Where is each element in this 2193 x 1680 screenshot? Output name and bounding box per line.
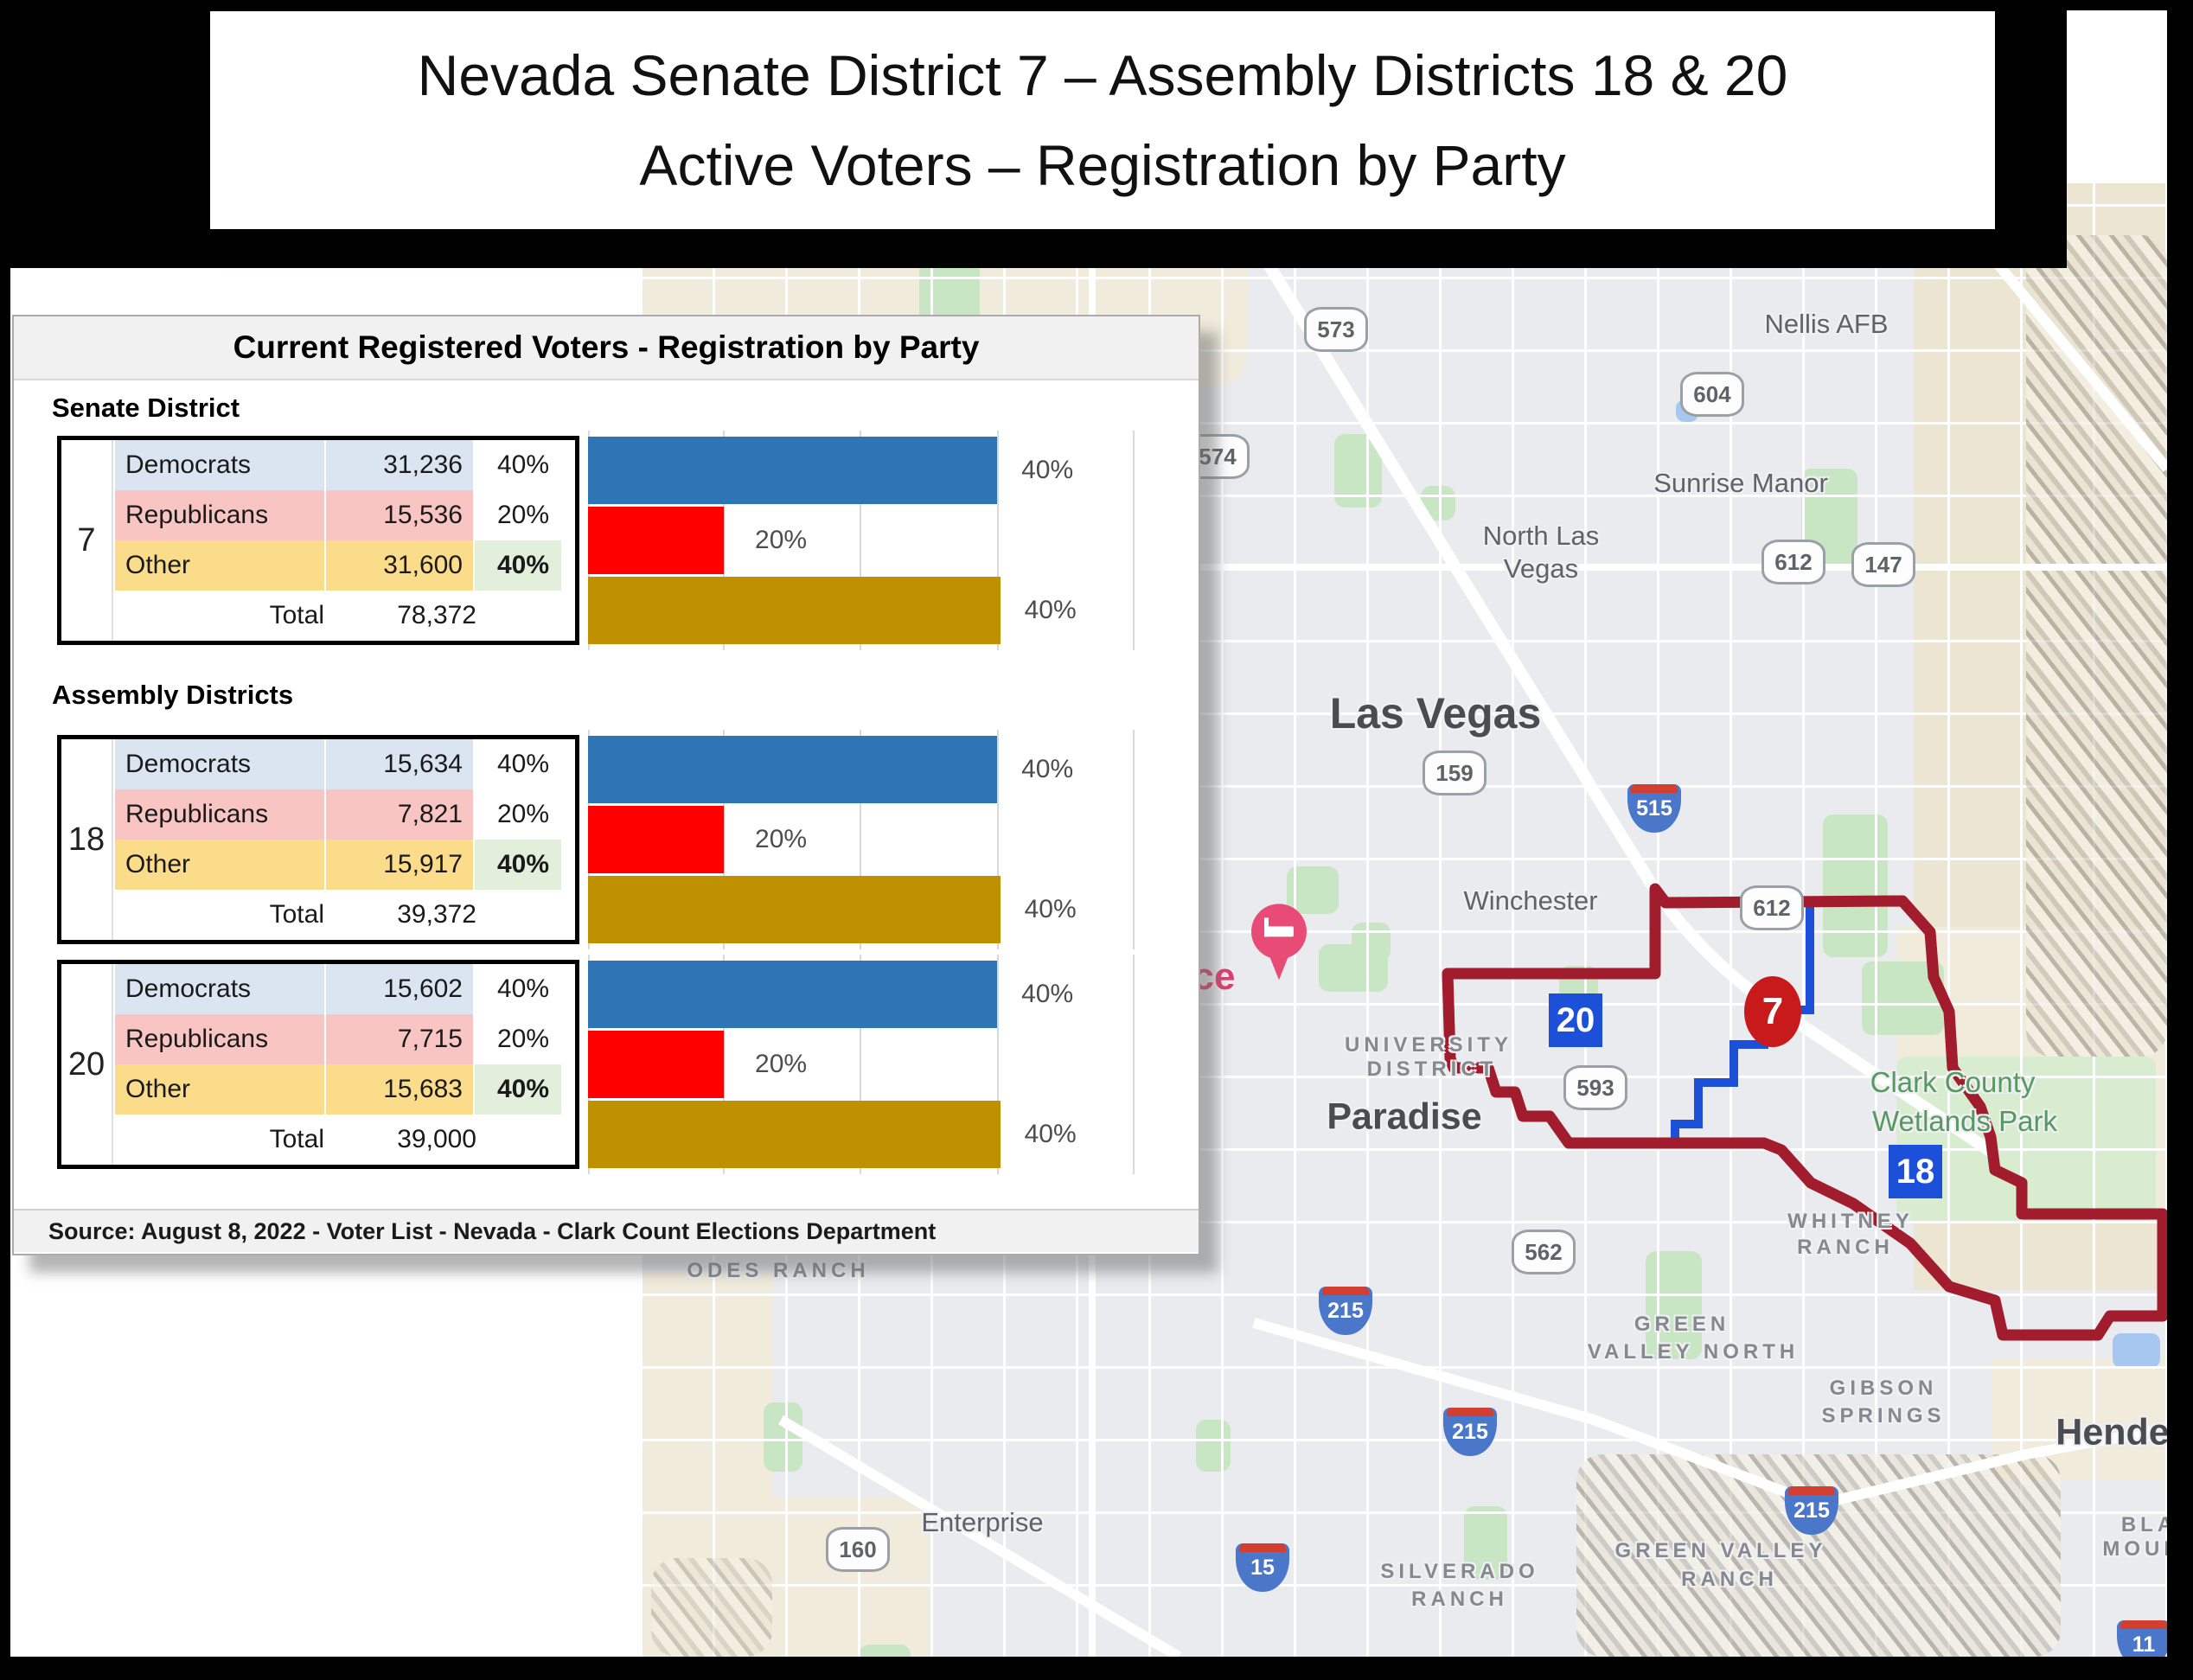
map-label-whitney: WHITNEY <box>1787 1210 1914 1234</box>
count-cell: 31,236 <box>324 440 473 490</box>
map-label-winchester: Winchester <box>1463 885 1597 917</box>
assembly-district-20-bar-chart: 40%20%40% <box>588 960 1190 1169</box>
map-label-district: DISTRICT <box>1367 1057 1498 1082</box>
total-label: Total <box>113 890 338 940</box>
democrats-bar <box>588 961 997 1028</box>
count-cell: 15,683 <box>324 1064 473 1115</box>
other-bar <box>588 876 1001 943</box>
total-pct <box>487 591 575 641</box>
pct-cell: 40% <box>473 1064 561 1115</box>
total-pct <box>487 1115 575 1165</box>
total-count: 39,372 <box>338 890 487 940</box>
party-cell: Republicans <box>113 490 324 540</box>
other-bar <box>588 1101 1001 1168</box>
table-row: Democrats31,23640% <box>113 440 575 490</box>
map-label-vegas: Vegas <box>1504 553 1578 584</box>
route-shield-160: 160 <box>826 1527 890 1572</box>
hotel-pin-tail <box>1269 954 1289 980</box>
map-label-ranch: RANCH <box>1797 1236 1894 1260</box>
party-cell: Republicans <box>113 789 324 840</box>
republicans-bar <box>588 507 724 574</box>
map-label-hende: Hende <box>2056 1412 2167 1454</box>
assembly-district-18-bar-chart: 40%20%40% <box>588 735 1190 944</box>
bar-value-label: 20% <box>732 514 829 567</box>
map-label-odes-ranch: ODES RANCH <box>687 1259 869 1283</box>
shield-number: 612 <box>1774 549 1812 576</box>
hotel-pin[interactable] <box>1251 904 1308 987</box>
pct-cell: 40% <box>473 840 561 890</box>
shield-number: 574 <box>1199 444 1236 470</box>
party-cell: Other <box>113 540 324 591</box>
total-pct <box>487 890 575 940</box>
table-row: Democrats15,63440% <box>113 739 575 789</box>
table-row: Republicans15,53620% <box>113 490 575 540</box>
title-line-2: Active Voters – Registration by Party <box>639 120 1565 210</box>
shield-number: 593 <box>1576 1075 1614 1102</box>
shield-number: 215 <box>1793 1498 1830 1523</box>
map-label-paradise: Paradise <box>1327 1096 1481 1139</box>
chart-gridline <box>1133 730 1135 949</box>
table-row: Other15,68340% <box>113 1064 575 1115</box>
route-shield-593: 593 <box>1563 1065 1627 1110</box>
map-label-bla: BLA <box>2121 1513 2167 1537</box>
bar-value-label: 40% <box>1021 456 1073 485</box>
other-bar <box>588 577 1001 644</box>
bar-value-label: 40% <box>1025 895 1077 924</box>
table-row: Democrats15,60240% <box>113 964 575 1014</box>
shield-number: 562 <box>1525 1239 1562 1266</box>
democrats-bar <box>588 437 997 504</box>
senate-district-7-bar-chart: 40%20%40% <box>588 436 1190 645</box>
table-row: Republicans7,71520% <box>113 1014 575 1064</box>
map-label-green: GREEN <box>1634 1313 1729 1337</box>
title-line-1: Nevada Senate District 7 – Assembly Dist… <box>418 30 1788 120</box>
pct-cell: 20% <box>473 490 561 540</box>
bar-value-label: 40% <box>1021 980 1073 1009</box>
route-shield-159: 159 <box>1423 751 1487 795</box>
source-bar: Source: August 8, 2022 - Voter List - Ne… <box>14 1209 1199 1252</box>
chart-gridline <box>1133 955 1135 1174</box>
map-label-enterprise: Enterprise <box>921 1507 1043 1538</box>
total-label: Total <box>113 591 338 641</box>
bar-value-label: 20% <box>732 1038 829 1091</box>
count-cell: 15,602 <box>324 964 473 1014</box>
count-cell: 7,715 <box>324 1014 473 1064</box>
total-count: 78,372 <box>338 591 487 641</box>
map-label-springs: SPRINGS <box>1821 1404 1945 1428</box>
map-label-las-vegas: Las Vegas <box>1330 688 1542 738</box>
shield-number: 612 <box>1753 895 1790 922</box>
bar-value-label: 40% <box>1021 755 1073 784</box>
party-cell: Democrats <box>113 964 324 1014</box>
shield-number: 147 <box>1864 552 1902 578</box>
chart-gridline <box>1133 431 1135 650</box>
total-count: 39,000 <box>338 1115 487 1165</box>
map-label-wetlands-park: Wetlands Park <box>1872 1105 2057 1138</box>
pct-cell: 20% <box>473 1014 561 1064</box>
shield-number: 215 <box>1327 1299 1364 1324</box>
map-label-ranch: RANCH <box>1411 1587 1508 1612</box>
map-label-silverado: SILVERADO <box>1380 1560 1538 1584</box>
map-label-ranch: RANCH <box>1681 1568 1778 1592</box>
route-shield-604: 604 <box>1680 372 1744 417</box>
assembly-section-heading: Assembly Districts <box>52 680 293 711</box>
title-box: Nevada Senate District 7 – Assembly Dist… <box>210 11 1995 229</box>
total-row: Total39,372 <box>113 890 575 940</box>
map-label-valley-north: VALLEY NORTH <box>1588 1340 1799 1364</box>
district-badge-20[interactable]: 20 <box>1549 993 1602 1047</box>
republicans-bar <box>588 806 724 873</box>
pct-cell: 20% <box>473 789 561 840</box>
map-label-clark-county: Clark County <box>1870 1066 2036 1099</box>
map-label-sunrise-manor: Sunrise Manor <box>1653 468 1828 499</box>
interstate-shield-11: 11 <box>2117 1620 2167 1657</box>
count-cell: 7,821 <box>324 789 473 840</box>
pct-cell: 40% <box>473 540 561 591</box>
assembly-district-18-table: 18Democrats15,63440%Republicans7,82120%O… <box>57 735 579 944</box>
district-number: 20 <box>61 964 113 1165</box>
map-label-university: UNIVERSITY <box>1345 1033 1512 1057</box>
map-label-green-valley: GREEN VALLEY <box>1615 1539 1827 1563</box>
map-label-north-las: North Las <box>1483 521 1599 552</box>
party-cell: Other <box>113 1064 324 1115</box>
total-row: Total39,000 <box>113 1115 575 1165</box>
voter-registration-panel: Current Registered Voters - Registration… <box>12 315 1200 1255</box>
party-cell: Other <box>113 840 324 890</box>
count-cell: 15,634 <box>324 739 473 789</box>
senate-section-heading: Senate District <box>52 393 240 424</box>
democrats-bar <box>588 736 997 803</box>
table-row: Other31,60040% <box>113 540 575 591</box>
map-label-gibson: GIBSON <box>1830 1377 1938 1401</box>
shield-number: 159 <box>1435 760 1473 787</box>
table-row: Republicans7,82120% <box>113 789 575 840</box>
assembly-district-20-table: 20Democrats15,60240%Republicans7,71520%O… <box>57 960 579 1169</box>
count-cell: 15,536 <box>324 490 473 540</box>
route-shield-147: 147 <box>1851 542 1915 587</box>
slide-canvas: Nellis AFBSunrise ManorNorth LasVegasLas… <box>0 0 2193 1680</box>
bar-value-label: 40% <box>1025 1120 1077 1149</box>
count-cell: 31,600 <box>324 540 473 591</box>
route-shield-612: 612 <box>1761 540 1825 584</box>
bed-icon <box>1264 926 1294 936</box>
map-label-moun: MOUN <box>2102 1537 2167 1562</box>
shield-number: 215 <box>1452 1420 1488 1445</box>
count-cell: 15,917 <box>324 840 473 890</box>
party-cell: Democrats <box>113 739 324 789</box>
shield-number: 160 <box>839 1536 876 1563</box>
panel-header: Current Registered Voters - Registration… <box>14 316 1199 380</box>
bar-value-label: 20% <box>732 813 829 866</box>
map-label-nellis-afb: Nellis AFB <box>1765 309 1889 340</box>
republicans-bar <box>588 1031 724 1098</box>
party-cell: Republicans <box>113 1014 324 1064</box>
senate-district-7-table: 7Democrats31,23640%Republicans15,53620%O… <box>57 436 579 645</box>
shield-number: 515 <box>1636 796 1672 821</box>
shield-number: 604 <box>1693 381 1730 408</box>
party-cell: Democrats <box>113 440 324 490</box>
source-text: Source: August 8, 2022 - Voter List - Ne… <box>48 1218 936 1245</box>
district-number: 18 <box>61 739 113 940</box>
route-shield-573: 573 <box>1304 307 1368 352</box>
district-number: 7 <box>61 440 113 641</box>
shield-number: 11 <box>2132 1632 2155 1658</box>
district-badge-18[interactable]: 18 <box>1889 1145 1942 1198</box>
shield-number: 573 <box>1317 316 1354 343</box>
total-label: Total <box>113 1115 338 1165</box>
shield-number: 15 <box>1250 1555 1275 1581</box>
pct-cell: 40% <box>473 964 561 1014</box>
pct-cell: 40% <box>473 739 561 789</box>
total-row: Total78,372 <box>113 591 575 641</box>
bar-value-label: 40% <box>1025 596 1077 625</box>
district-badge-7[interactable]: 7 <box>1744 976 1801 1047</box>
route-shield-562: 562 <box>1512 1230 1576 1274</box>
route-shield-612: 612 <box>1740 885 1804 930</box>
table-row: Other15,91740% <box>113 840 575 890</box>
pct-cell: 40% <box>473 440 561 490</box>
